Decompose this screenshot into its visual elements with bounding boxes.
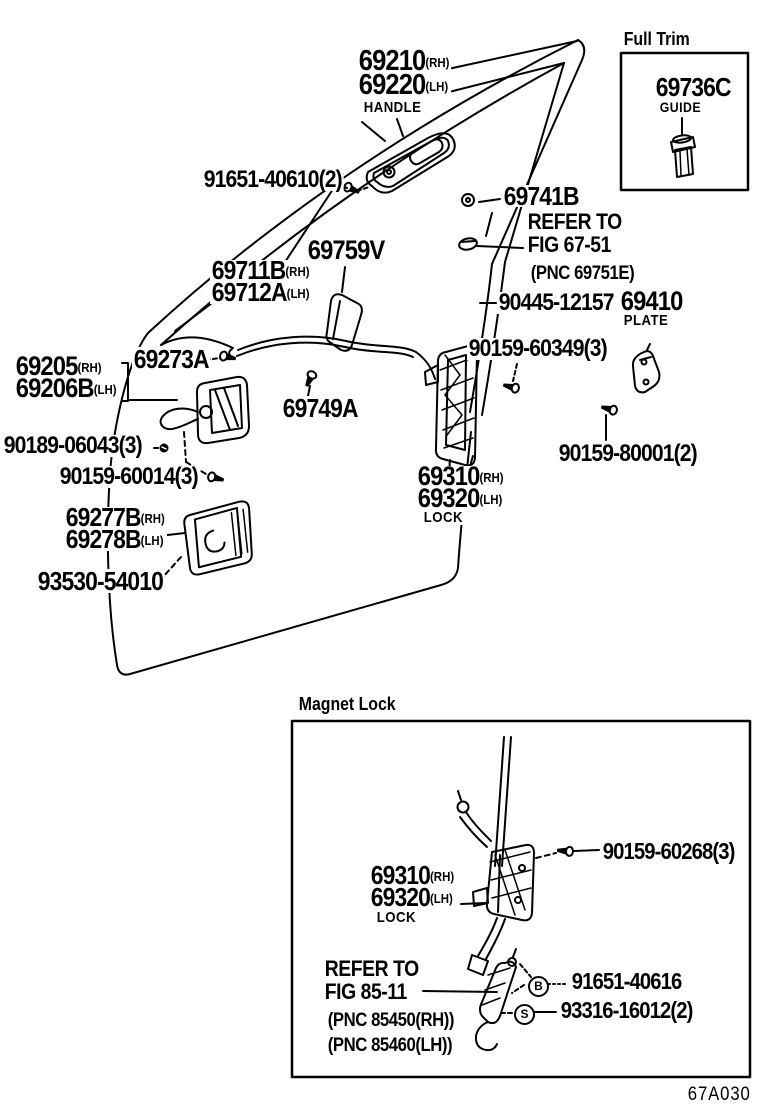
side-code: (RH) [141, 511, 165, 526]
label-frame-numbers: 69711B(RH) 69712A(LH) [210, 260, 311, 304]
label-screw-60014: 90159-60014(3) [58, 466, 200, 488]
label-magnet-lock-numbers: 69310(RH) 69320(LH) [369, 865, 456, 909]
part-number: 69206B [16, 373, 94, 403]
side-code: (LH) [430, 891, 453, 906]
side-code: (LH) [287, 286, 310, 301]
part-number: 69712A [212, 277, 287, 307]
label-inside-handle-numbers: 69205(RH) 69206B(LH) [14, 356, 118, 400]
side-code: (LH) [425, 79, 448, 94]
label-lock-numbers: 69310(RH) 69320(LH) [416, 466, 505, 510]
full-trim-title: Full Trim [622, 30, 692, 49]
side-code: (RH) [430, 869, 454, 884]
screw-60349 [502, 364, 520, 393]
label-screw-91651-40610: 91651-40610(2) [202, 169, 344, 191]
part-number: 69320 [371, 882, 430, 912]
plate-69410-part [633, 344, 660, 392]
label-refer-fig-67-51: REFER TO FIG 67-51 [526, 210, 624, 256]
part-number: 69220 [359, 69, 426, 101]
label-pnc-85450: (PNC 85450(RH)) [326, 1008, 456, 1033]
side-code: (LH) [141, 533, 164, 548]
part-number: 69278B [66, 524, 141, 554]
side-code: (LH) [479, 492, 502, 507]
circled-letter-s: S [514, 1004, 535, 1025]
label-lock-caption: LOCK [422, 510, 465, 525]
label-nut-90189: 90189-06043(3) [2, 435, 144, 457]
label-plate-caption: PLATE [622, 313, 670, 328]
bezel-part [183, 501, 256, 576]
label-pnc-69751e: (PNC 69751E) [529, 261, 636, 286]
label-screw-60268: 90159-60268(3) [601, 841, 736, 862]
side-code: (LH) [94, 382, 117, 397]
label-rod-90445: 90445-12157 [497, 292, 615, 314]
label-pad-69759v: 69759V [306, 237, 386, 263]
label-bezel-numbers: 69277B(RH) 69278B(LH) [64, 507, 167, 551]
label-pnc-85460: (PNC 85460(LH)) [326, 1033, 454, 1058]
linkage-rod [206, 337, 435, 379]
label-screw-93316-16012: 93316-16012(2) [559, 1000, 694, 1021]
side-code: (RH) [425, 55, 449, 70]
label-magnet-lock-caption: LOCK [375, 910, 418, 925]
screw-80001 [600, 403, 618, 440]
label-bolt-91651-40616: 91651-40616 [570, 971, 683, 992]
label-plate-69410: 69410 [619, 288, 684, 314]
label-guide-69736c: 69736C [654, 75, 732, 99]
label-refer-fig-85-11: REFER TO FIG 85-11 [323, 957, 421, 1003]
label-screw-60349: 90159-60349(3) [467, 338, 609, 360]
label-screw-69273a: 69273A [132, 347, 210, 371]
circled-letter-b: B [528, 976, 549, 997]
label-clip-69741b: 69741B [502, 185, 580, 207]
label-screw-80001: 90159-80001(2) [557, 443, 699, 465]
grommet-part [458, 237, 523, 252]
side-code: (RH) [285, 264, 309, 279]
label-clip-69749a: 69749A [281, 396, 359, 420]
label-outside-handle-numbers: 69210(RH) 69220(LH) [357, 50, 451, 98]
label-handle-caption: HANDLE [362, 100, 423, 115]
diagram-code: 67A030 [686, 1084, 752, 1106]
diagram-line-art [0, 0, 760, 1112]
label-screw-93530: 93530-54010 [36, 569, 165, 593]
side-code: (RH) [479, 470, 503, 485]
magnet-lock-title: Magnet Lock [297, 695, 397, 714]
parts-diagram-page: 69210(RH) 69220(LH) HANDLE 91651-40610(2… [0, 0, 760, 1112]
clip-69741b-part [462, 194, 500, 236]
label-guide-caption: GUIDE [658, 100, 703, 115]
